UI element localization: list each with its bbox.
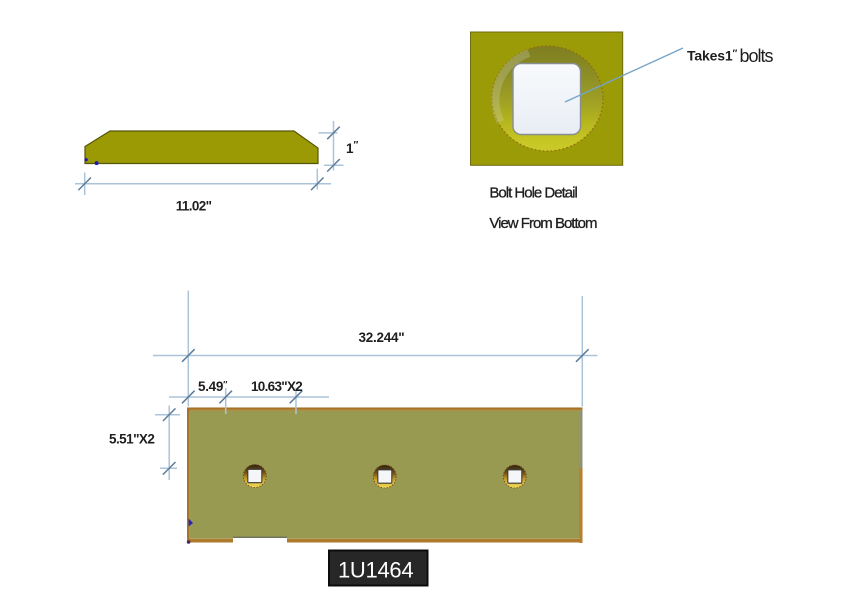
svg-text:1U1464: 1U1464 — [338, 558, 413, 583]
svg-text:32.244": 32.244" — [359, 330, 405, 345]
svg-text:5.49″: 5.49″ — [198, 379, 228, 394]
svg-text:10.63"X2: 10.63"X2 — [251, 379, 302, 394]
svg-text:5.51"X2: 5.51"X2 — [109, 431, 154, 446]
svg-text:11.02": 11.02" — [176, 199, 212, 214]
svg-text:bolts: bolts — [740, 46, 774, 66]
svg-text:1″: 1″ — [346, 140, 359, 156]
svg-text:View From Bottom: View From Bottom — [489, 215, 597, 232]
svg-text:Takes1″: Takes1″ — [687, 48, 738, 64]
svg-text:Bolt Hole Detail: Bolt Hole Detail — [489, 184, 577, 201]
